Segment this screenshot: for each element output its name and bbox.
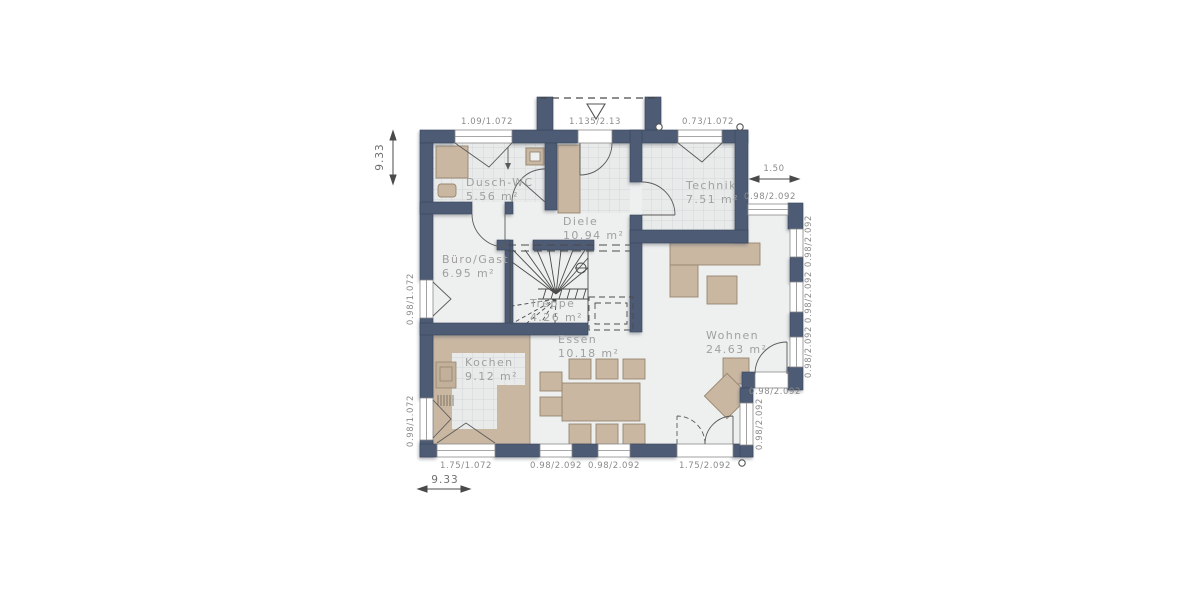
stool (540, 397, 562, 416)
dim-bottom-3: 0.98/2.092 (588, 461, 640, 471)
bay-door (755, 372, 788, 388)
dim-right-5: 0.98/2.092 (749, 387, 801, 397)
room-area: 6.95 m² (442, 267, 509, 281)
downpipe-marker (656, 124, 662, 130)
room-area: 4.26 m² (530, 311, 583, 325)
dim-right-2: 0.98/2.092 (804, 215, 814, 267)
room-area: 7.51 m² (686, 193, 739, 207)
dim-top-3: 0.73/1.072 (682, 117, 734, 127)
room-label-technik: Technik 7.51 m² (686, 179, 739, 206)
dining-table (562, 383, 640, 421)
room-area: 10.18 m² (558, 347, 619, 361)
room-name: Dusch-WC (466, 176, 533, 190)
floor-plan-page: Dusch-WC 5.56 m² Technik 7.51 m² Diele 1… (0, 0, 1200, 600)
wardrobe (558, 145, 580, 213)
room-area: 10.94 m² (563, 229, 624, 243)
chair (596, 359, 618, 379)
sofa-back (670, 243, 760, 265)
room-area: 24.63 m² (706, 343, 767, 357)
room-name: Diele (563, 215, 624, 229)
dim-total-depth: 9.33 (374, 143, 386, 170)
downpipe-marker (737, 124, 743, 130)
room-name: Büro/Gast (442, 253, 509, 267)
porch-pier (537, 97, 553, 130)
chair (623, 424, 645, 444)
chair (596, 424, 618, 444)
room-label-buero-gast: Büro/Gast 6.95 m² (442, 253, 509, 280)
dim-bottom-1: 1.75/1.072 (440, 461, 492, 471)
patio-door (677, 444, 733, 457)
room-area: 9.12 m² (465, 370, 518, 384)
chair (623, 359, 645, 379)
room-label-essen: Essen 10.18 m² (558, 333, 619, 360)
kitchen-counters (433, 333, 530, 445)
floor-plan-canvas (0, 0, 1200, 600)
dim-left-1: 0.98/1.072 (406, 273, 416, 325)
dim-right-6: 0.98/2.092 (755, 398, 765, 450)
room-label-kochen: Kochen 9.12 m² (465, 356, 518, 383)
stool (540, 372, 562, 391)
chair (569, 424, 591, 444)
room-name: Treppe (530, 297, 583, 311)
dim-total-width: 9.33 (431, 474, 458, 486)
toilet (438, 184, 456, 197)
washbasin-bowl (530, 152, 540, 161)
dim-right-4: 0.98/2.092 (804, 326, 814, 378)
chair (569, 359, 591, 379)
sofa-leg (670, 265, 698, 297)
dim-bottom-4: 1.75/2.092 (679, 461, 731, 471)
room-name: Wohnen (706, 329, 767, 343)
room-name: Kochen (465, 356, 518, 370)
room-name: Technik (686, 179, 739, 193)
shower (436, 146, 468, 178)
downpipe-marker (739, 460, 745, 466)
dim-bay-projection: 1.50 (763, 164, 784, 174)
entrance-door-frame (578, 130, 612, 143)
coffee-table (707, 276, 737, 304)
room-name: Essen (558, 333, 619, 347)
room-label-diele: Diele 10.94 m² (563, 215, 624, 242)
dim-right-1: 0.98/2.092 (744, 192, 796, 202)
dim-left-2: 0.98/1.072 (406, 395, 416, 447)
dim-bottom-2: 0.98/2.092 (530, 461, 582, 471)
room-label-dusch-wc: Dusch-WC 5.56 m² (466, 176, 533, 203)
room-area: 5.56 m² (466, 190, 533, 204)
room-label-wohnen: Wohnen 24.63 m² (706, 329, 767, 356)
oven (436, 362, 456, 388)
dim-top-2: 1.135/2.13 (569, 117, 621, 127)
dim-top-1: 1.09/1.072 (461, 117, 513, 127)
room-label-treppe: Treppe 4.26 m² (530, 297, 583, 324)
dim-right-3: 0.98/2.092 (804, 271, 814, 323)
